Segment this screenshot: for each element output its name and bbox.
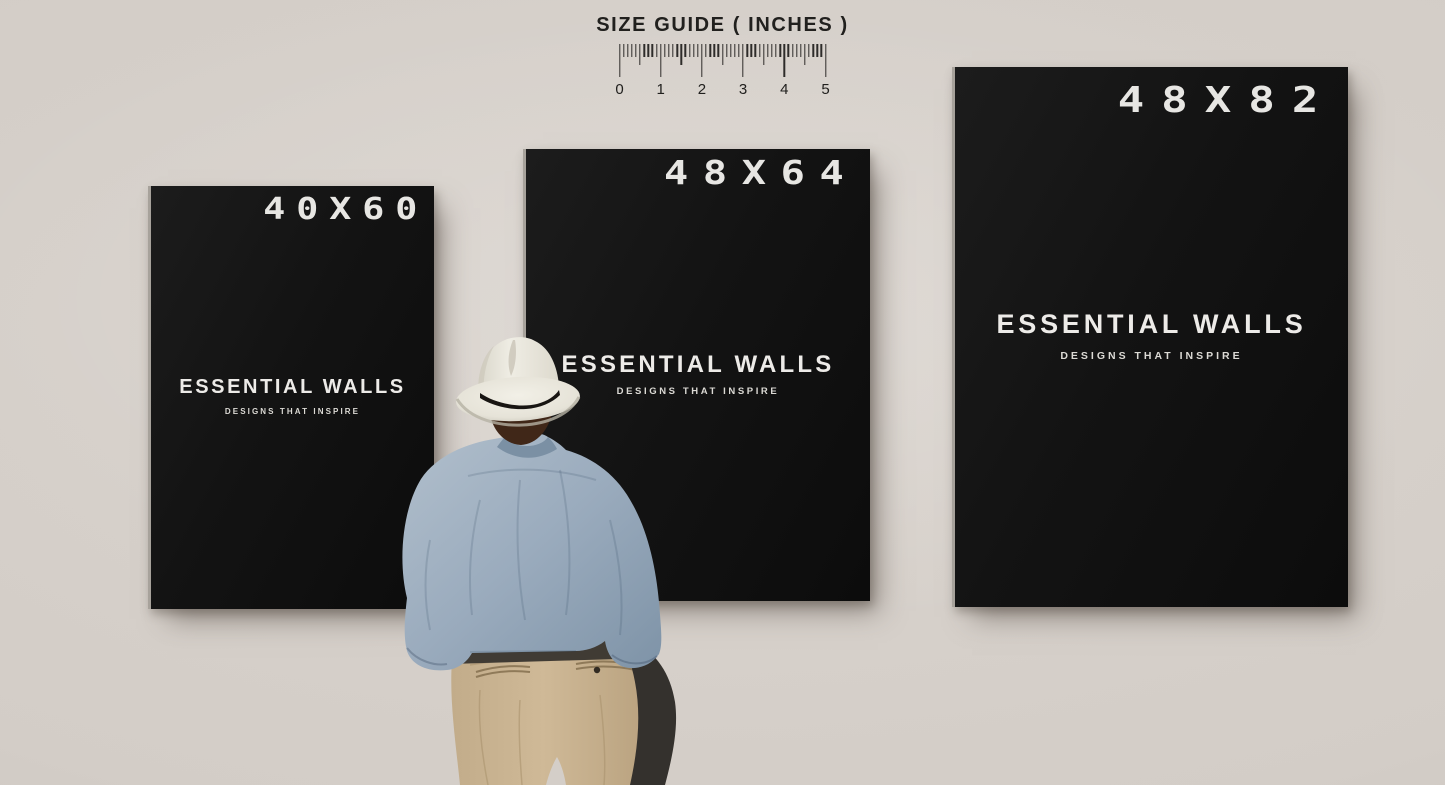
ruler-ticks	[620, 44, 826, 78]
ruler-label-3: 3	[739, 81, 747, 98]
size-guide-title: SIZE GUIDE ( INCHES )	[573, 14, 873, 37]
poster-size-label: 40X60	[263, 195, 428, 225]
poster-brand-tagline: DESIGNS THAT INSPIRE	[955, 351, 1348, 362]
poster-brand-title: ESSENTIAL WALLS	[955, 311, 1348, 338]
man-shirt	[402, 433, 661, 671]
wall-art-mockup-scene: SIZE GUIDE ( INCHES ) 0 1 2 3 4 5 40X60 …	[0, 0, 1445, 785]
man-trousers	[451, 647, 656, 785]
ruler-label-1: 1	[657, 81, 665, 98]
fedora-hat	[455, 337, 581, 425]
size-guide: SIZE GUIDE ( INCHES ) 0 1 2 3 4 5	[573, 14, 873, 100]
size-guide-ruler: 0 1 2 3 4 5	[620, 44, 826, 100]
poster-48x82: 48X82 ESSENTIAL WALLS DESIGNS THAT INSPI…	[952, 67, 1348, 607]
ruler-label-4: 4	[780, 81, 788, 98]
ruler-labels: 0 1 2 3 4 5	[620, 81, 826, 99]
poster-size-label: 48X82	[1117, 83, 1335, 119]
ruler-label-0: 0	[615, 81, 623, 98]
ruler-label-5: 5	[821, 81, 829, 98]
man-figure	[395, 334, 711, 785]
poster-brand-tagline: DESIGNS THAT INSPIRE	[151, 408, 434, 416]
poster-size-label: 48X64	[664, 156, 858, 189]
ruler-label-2: 2	[698, 81, 706, 98]
poster-brand-title: ESSENTIAL WALLS	[151, 377, 434, 397]
pocket-button	[594, 667, 600, 673]
poster-40x60: 40X60 ESSENTIAL WALLS DESIGNS THAT INSPI…	[148, 186, 434, 609]
